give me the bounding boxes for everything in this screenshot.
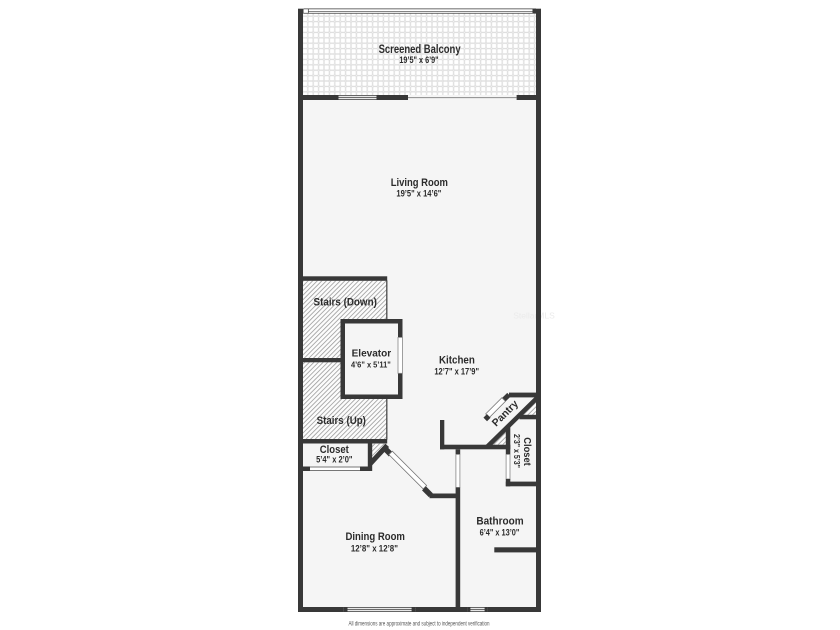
svg-text:12’7" x 17’9": 12’7" x 17’9": [434, 366, 479, 376]
svg-text:Bathroom: Bathroom: [476, 516, 523, 528]
svg-text:2’3" x 5’3": 2’3" x 5’3": [512, 434, 521, 468]
svg-text:4’6" x 5’11": 4’6" x 5’11": [351, 361, 391, 370]
svg-text:Screened Balcony: Screened Balcony: [379, 42, 461, 56]
svg-text:6’4" x 13’0": 6’4" x 13’0": [480, 528, 520, 538]
svg-text:StellarMLS: StellarMLS: [513, 311, 555, 321]
svg-text:19’5" x 6’9": 19’5" x 6’9": [399, 55, 438, 65]
svg-text:Stairs (Down): Stairs (Down): [314, 297, 378, 309]
svg-text:19’5" x 14’6": 19’5" x 14’6": [396, 189, 441, 199]
svg-text:5’4" x 2’0": 5’4" x 2’0": [316, 455, 352, 465]
svg-text:Stairs (Up): Stairs (Up): [317, 415, 366, 427]
svg-text:12’8" x 12’8": 12’8" x 12’8": [351, 543, 398, 553]
svg-text:Elevator: Elevator: [352, 349, 392, 360]
svg-text:Dining Room: Dining Room: [345, 531, 405, 543]
svg-text:Kitchen: Kitchen: [439, 354, 475, 366]
svg-text:Closet: Closet: [521, 437, 532, 466]
svg-text:Living Room: Living Room: [391, 177, 448, 189]
svg-text:All dimensions are approximate: All dimensions are approximate and subje…: [349, 621, 490, 628]
